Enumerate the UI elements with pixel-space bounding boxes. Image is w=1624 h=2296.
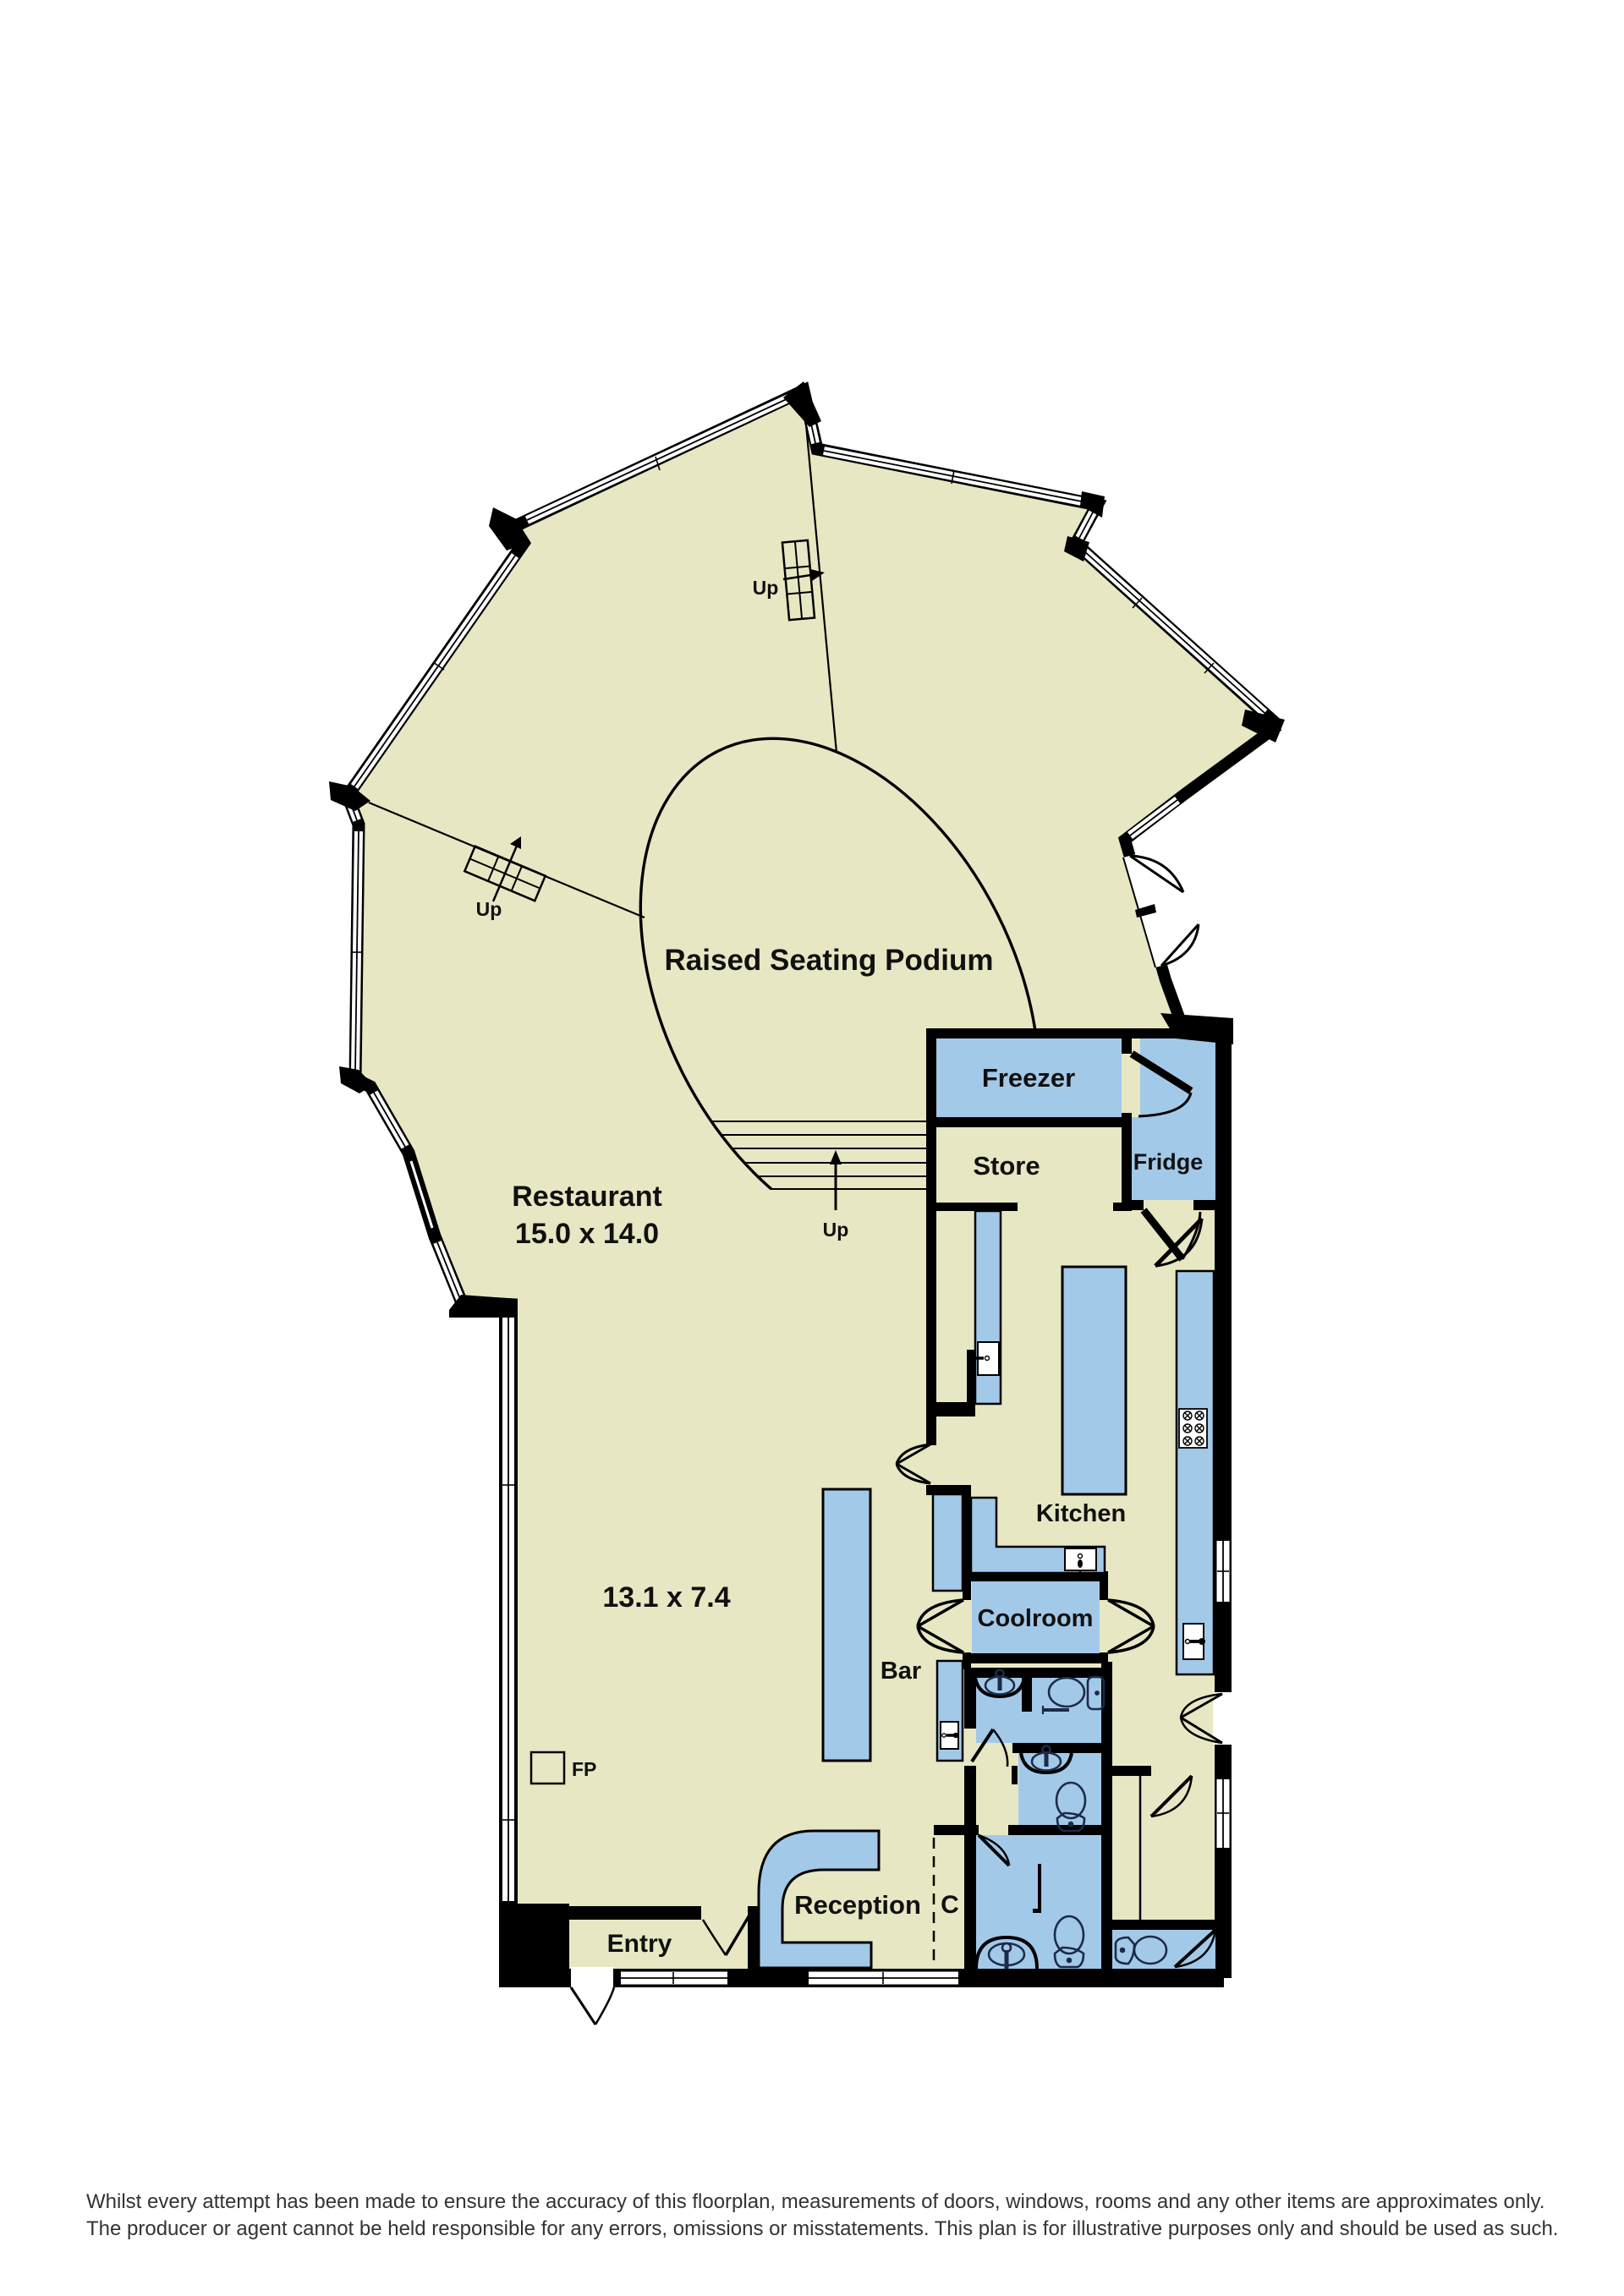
svg-text:Kitchen: Kitchen — [1036, 1500, 1126, 1527]
svg-text:Store: Store — [973, 1151, 1040, 1181]
svg-text:Up: Up — [476, 898, 502, 920]
svg-text:Restaurant: Restaurant — [512, 1181, 662, 1213]
svg-text:Raised Seating Podium: Raised Seating Podium — [665, 944, 994, 977]
svg-text:Fridge: Fridge — [1133, 1149, 1204, 1175]
svg-text:FP: FP — [572, 1758, 596, 1780]
svg-text:The producer or agent cannot b: The producer or agent cannot be held res… — [86, 2217, 1558, 2240]
svg-text:C: C — [941, 1891, 959, 1919]
svg-text:Freezer: Freezer — [982, 1063, 1075, 1093]
svg-text:13.1 x 7.4: 13.1 x 7.4 — [602, 1581, 730, 1614]
svg-text:Up: Up — [823, 1219, 849, 1241]
svg-text:Reception: Reception — [794, 1890, 921, 1920]
svg-text:Whilst every attempt has been: Whilst every attempt has been made to en… — [86, 2190, 1544, 2213]
svg-text:Up: Up — [753, 577, 779, 599]
svg-text:Entry: Entry — [607, 1930, 672, 1958]
svg-text:Bar: Bar — [881, 1658, 921, 1685]
svg-text:15.0 x 14.0: 15.0 x 14.0 — [515, 1218, 659, 1250]
svg-text:Coolroom: Coolroom — [978, 1605, 1094, 1632]
